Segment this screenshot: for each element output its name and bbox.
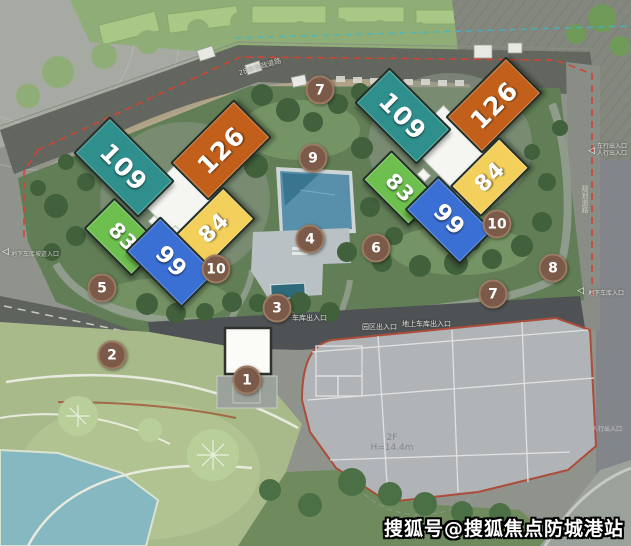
plan-marker-10-east: 10 [483,210,512,239]
label-garage-entrance-south-2: 园区出入口 [362,322,397,332]
plan-marker-3: 3 [263,294,292,323]
label-plot-floors: 2F [362,433,422,443]
site-plan: 109 126 83 84 99 109 126 83 84 99 1 2 3 … [0,0,631,546]
plan-marker-2: 2 [98,341,127,370]
label-entrance-east: 车行出入口 人行出入口 [597,143,627,157]
label-garage-ramp-west: 地下车库坡道入口 [11,249,59,258]
label-plot-spec: 2F H=14.4m [362,433,422,453]
plan-marker-5: 5 [88,274,117,303]
gate-arrow-icon: ◁ [2,247,9,257]
plan-marker-7-east: 7 [479,280,508,309]
plan-marker-10-west: 10 [202,255,231,284]
plan-marker-7-north: 7 [306,76,335,105]
label-plot-height: H=14.4m [362,443,422,453]
plan-marker-9: 9 [299,144,328,173]
label-garage-entrance-east-lower: 地下车库入口 [588,288,624,297]
plan-marker-6: 6 [362,234,391,263]
gate-arrow-icon: ◁ [588,146,595,156]
label-garage-entrance-south-3: 地上车库出入口 [402,319,451,329]
watermark: 搜狐号@搜狐焦点防城港站 [384,514,624,541]
plan-marker-4: 4 [296,225,325,254]
label-entrance-east-line1: 车行出入口 [597,143,627,150]
label-pedestrian-entrance-southeast: 人行出入口 [592,424,622,433]
label-planned-road: 规划道路 [580,185,590,213]
plan-marker-8: 8 [539,254,568,283]
label-entrance-east-line2: 人行出入口 [597,150,627,157]
gate-arrow-icon: ◁ [577,286,584,296]
label-garage-entrance-south-1: 车库出入口 [292,313,327,323]
plan-marker-1: 1 [233,366,262,395]
